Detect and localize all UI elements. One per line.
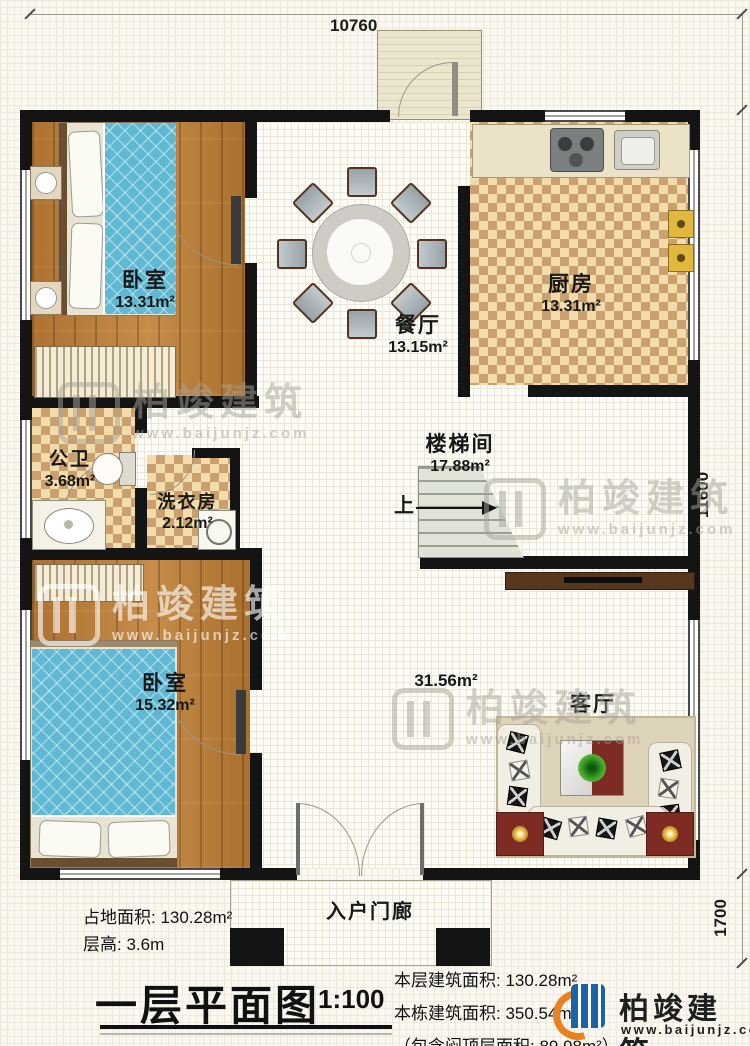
dining-area: 13.15m² [348, 338, 488, 357]
wardrobe [34, 346, 176, 398]
living-area-label: 31.56m² [396, 671, 496, 691]
dimension-line-top [30, 14, 742, 15]
nightstand [30, 166, 62, 200]
dimension-top-label: 10760 [330, 16, 377, 36]
wall-segment [20, 110, 390, 122]
dining-name: 餐厅 [348, 313, 488, 338]
laundry-area: 2.12m² [130, 514, 245, 533]
brand-url: www.baijunjz.com [621, 1022, 750, 1037]
tv-icon [564, 577, 642, 583]
bedroom1-area: 13.31m² [75, 293, 215, 312]
bath-label: 公卫 3.68m² [24, 449, 116, 491]
stair-up-label: 上 [394, 494, 414, 518]
door-leaf [231, 196, 241, 264]
appliance-icon [668, 210, 694, 238]
appliance-icon [668, 244, 694, 272]
stairwell-label: 楼梯间 17.88m² [390, 432, 530, 476]
laundry-name: 洗衣房 [130, 492, 245, 514]
baijun-logo-icon [553, 982, 613, 1040]
bedroom2-area: 15.32m² [95, 696, 235, 715]
dining-chair [417, 239, 447, 269]
end-table [496, 812, 544, 856]
dimension-line-right [742, 14, 743, 964]
bedroom1-label: 卧室 13.31m² [75, 268, 215, 312]
porch-column [436, 928, 490, 966]
plant-icon [578, 754, 606, 782]
floorplan-sheet: 10760 11600 1700 [0, 0, 750, 1046]
kitchen-label: 厨房 13.31m² [501, 272, 641, 316]
kitchen-area: 13.31m² [501, 297, 641, 316]
nightstand [30, 281, 62, 315]
dining-table [312, 204, 410, 302]
title-underline [100, 1025, 392, 1029]
dining-label: 餐厅 13.15m² [348, 313, 488, 357]
sofa [497, 724, 541, 818]
entry-door-leaf [296, 803, 300, 875]
wall-segment [135, 408, 147, 433]
stairwell-name: 楼梯间 [390, 432, 530, 457]
entry-porch-label: 入户门廊 [290, 900, 450, 924]
bedroom2-name: 卧室 [95, 671, 235, 696]
coffee-table [560, 740, 624, 796]
dining-chair [277, 239, 307, 269]
entry-door-leaf [420, 803, 424, 875]
tv-console [505, 572, 695, 590]
wall-segment [250, 753, 262, 880]
stairwell-area: 17.88m² [390, 457, 530, 476]
bedroom1-name: 卧室 [75, 268, 215, 293]
laundry-label: 洗衣房 2.12m² [130, 492, 245, 533]
window-symbol [60, 868, 220, 880]
plan-title: 一层平面图 [95, 972, 320, 1033]
wall-segment [528, 385, 700, 397]
dimension-bottomright-label: 1700 [711, 899, 731, 937]
end-table [646, 812, 694, 856]
window-symbol [545, 110, 625, 122]
bath-area: 3.68m² [24, 472, 116, 491]
stair-direction-line [416, 507, 486, 509]
brand-logo: 柏竣建筑 www.baijunjz.com [553, 980, 745, 1042]
sink-icon [614, 130, 660, 170]
bath-name: 公卫 [24, 449, 116, 472]
wardrobe [34, 564, 144, 602]
lamp-icon [512, 826, 528, 842]
stair-direction-arrow-icon [482, 501, 497, 515]
floor-height-note: 层高: 3.6m [83, 930, 164, 955]
kitchen-name: 厨房 [501, 272, 641, 297]
rear-door-leaf [452, 62, 458, 116]
title-underline-shadow [100, 1033, 392, 1035]
lamp-icon [662, 826, 678, 842]
wall-segment [458, 186, 470, 397]
door-leaf [236, 690, 246, 754]
porch-column [230, 928, 284, 966]
sink-counter [32, 500, 106, 550]
dining-chair [347, 167, 377, 197]
bedroom2-label: 卧室 15.32m² [95, 671, 235, 715]
plan-scale: 1:100 [318, 984, 385, 1015]
stove-icon [550, 128, 604, 172]
wall-segment [423, 868, 700, 880]
land-area-note: 占地面积: 130.28m² [83, 903, 232, 928]
wall-segment [250, 560, 262, 690]
living-name: 客厅 [543, 692, 643, 717]
wall-segment [245, 263, 257, 408]
wall-segment [245, 122, 257, 198]
